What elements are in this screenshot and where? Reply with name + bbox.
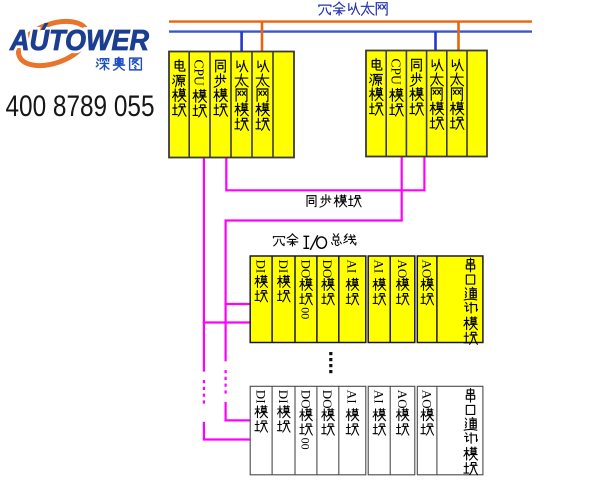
svg-text:AI: AI (372, 260, 387, 274)
svg-text:DO: DO (298, 390, 313, 409)
svg-text:AI: AI (372, 390, 387, 404)
svg-text:AI: AI (345, 390, 360, 404)
svg-text:DI: DI (254, 390, 269, 404)
svg-text:AUTOWER: AUTOWER (9, 25, 149, 57)
svg-text:DI: DI (276, 260, 291, 274)
svg-text:AO: AO (419, 390, 434, 409)
svg-text:AI: AI (345, 260, 360, 274)
svg-text:DO: DO (298, 260, 313, 279)
svg-text:AO: AO (419, 260, 434, 279)
svg-text:400 8789 055: 400 8789 055 (6, 90, 155, 123)
svg-text:00: 00 (299, 307, 313, 319)
svg-text:CPU: CPU (192, 60, 207, 87)
svg-text:DI: DI (276, 390, 291, 404)
svg-text:CPU: CPU (388, 59, 403, 86)
svg-text:00: 00 (299, 438, 313, 450)
svg-text:DO: DO (320, 390, 335, 409)
svg-text:DO: DO (320, 260, 335, 279)
svg-text:AO: AO (395, 390, 410, 409)
svg-text:AO: AO (395, 260, 410, 279)
svg-text:DI: DI (254, 260, 269, 274)
